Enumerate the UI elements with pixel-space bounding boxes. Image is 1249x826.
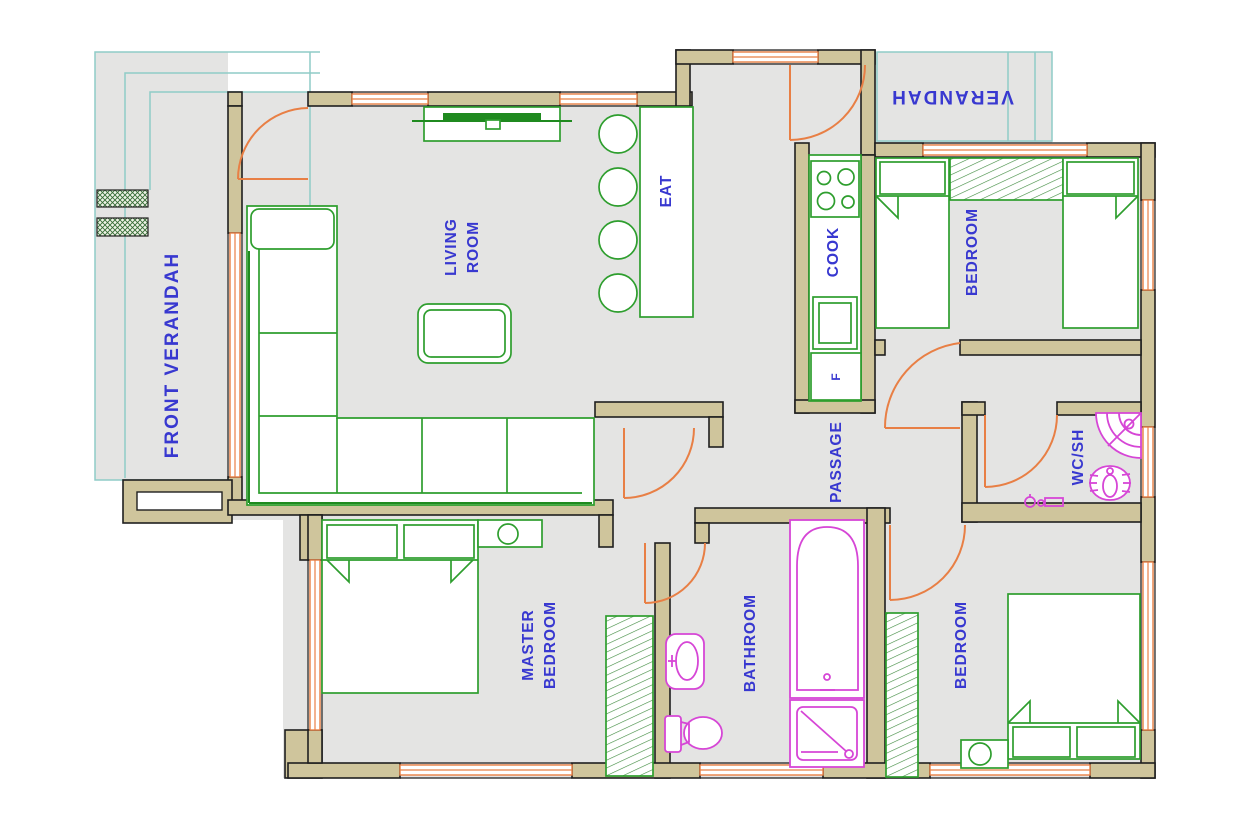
kitchen-sink xyxy=(813,297,857,349)
shower-tray xyxy=(790,700,864,767)
wardrobe-bedroom-top xyxy=(950,158,1063,200)
window xyxy=(308,560,322,730)
bedside-table xyxy=(961,740,1008,768)
label-master-bedroom-line1: MASTER xyxy=(520,609,537,680)
twin-bed-left xyxy=(876,158,949,328)
window xyxy=(1141,427,1155,497)
label-bedroom-top: BEDROOM xyxy=(964,208,981,296)
dressing-table xyxy=(478,520,542,547)
label-master-bedroom-line2: BEDROOM xyxy=(542,601,559,689)
label-cook: COOK xyxy=(825,227,842,278)
label-eat: EAT xyxy=(658,175,675,208)
bathtub xyxy=(790,520,864,698)
coffee-table xyxy=(418,304,511,363)
label-living-room-line2: ROOM xyxy=(465,221,482,273)
refrigerator-label: F xyxy=(829,373,843,380)
label-bedroom-bottom: BEDROOM xyxy=(953,601,970,689)
wardrobe-bedroom-bottom xyxy=(886,613,918,777)
master-double-bed xyxy=(322,520,478,693)
squat-toilet xyxy=(1089,466,1131,500)
toilet xyxy=(665,716,722,752)
window xyxy=(1141,562,1155,730)
label-passage: PASSAGE xyxy=(828,421,845,503)
tv-unit xyxy=(412,107,572,141)
breakfast-counter xyxy=(640,107,693,317)
window xyxy=(228,233,242,477)
label-front-verandah: FRONT VERANDAH xyxy=(162,252,183,458)
window xyxy=(560,92,637,106)
bottom-double-bed xyxy=(1008,594,1140,759)
floor-plan-page: F xyxy=(0,0,1249,826)
refrigerator: F xyxy=(811,353,861,400)
label-living-room-line1: LIVING xyxy=(443,218,460,276)
window xyxy=(733,50,818,64)
wash-basin xyxy=(666,634,704,689)
floor-plan-canvas: F xyxy=(0,0,1249,826)
label-bathroom: BATHROOM xyxy=(742,594,759,692)
window xyxy=(352,92,428,106)
wardrobe-master xyxy=(606,616,653,776)
window xyxy=(923,143,1087,157)
stove-4-burner xyxy=(811,161,859,217)
window xyxy=(1141,200,1155,290)
twin-bed-right xyxy=(1063,158,1138,328)
label-wc-shower: WC/SH xyxy=(1070,429,1087,486)
label-verandah-rear: VERANDAH xyxy=(890,86,1014,107)
